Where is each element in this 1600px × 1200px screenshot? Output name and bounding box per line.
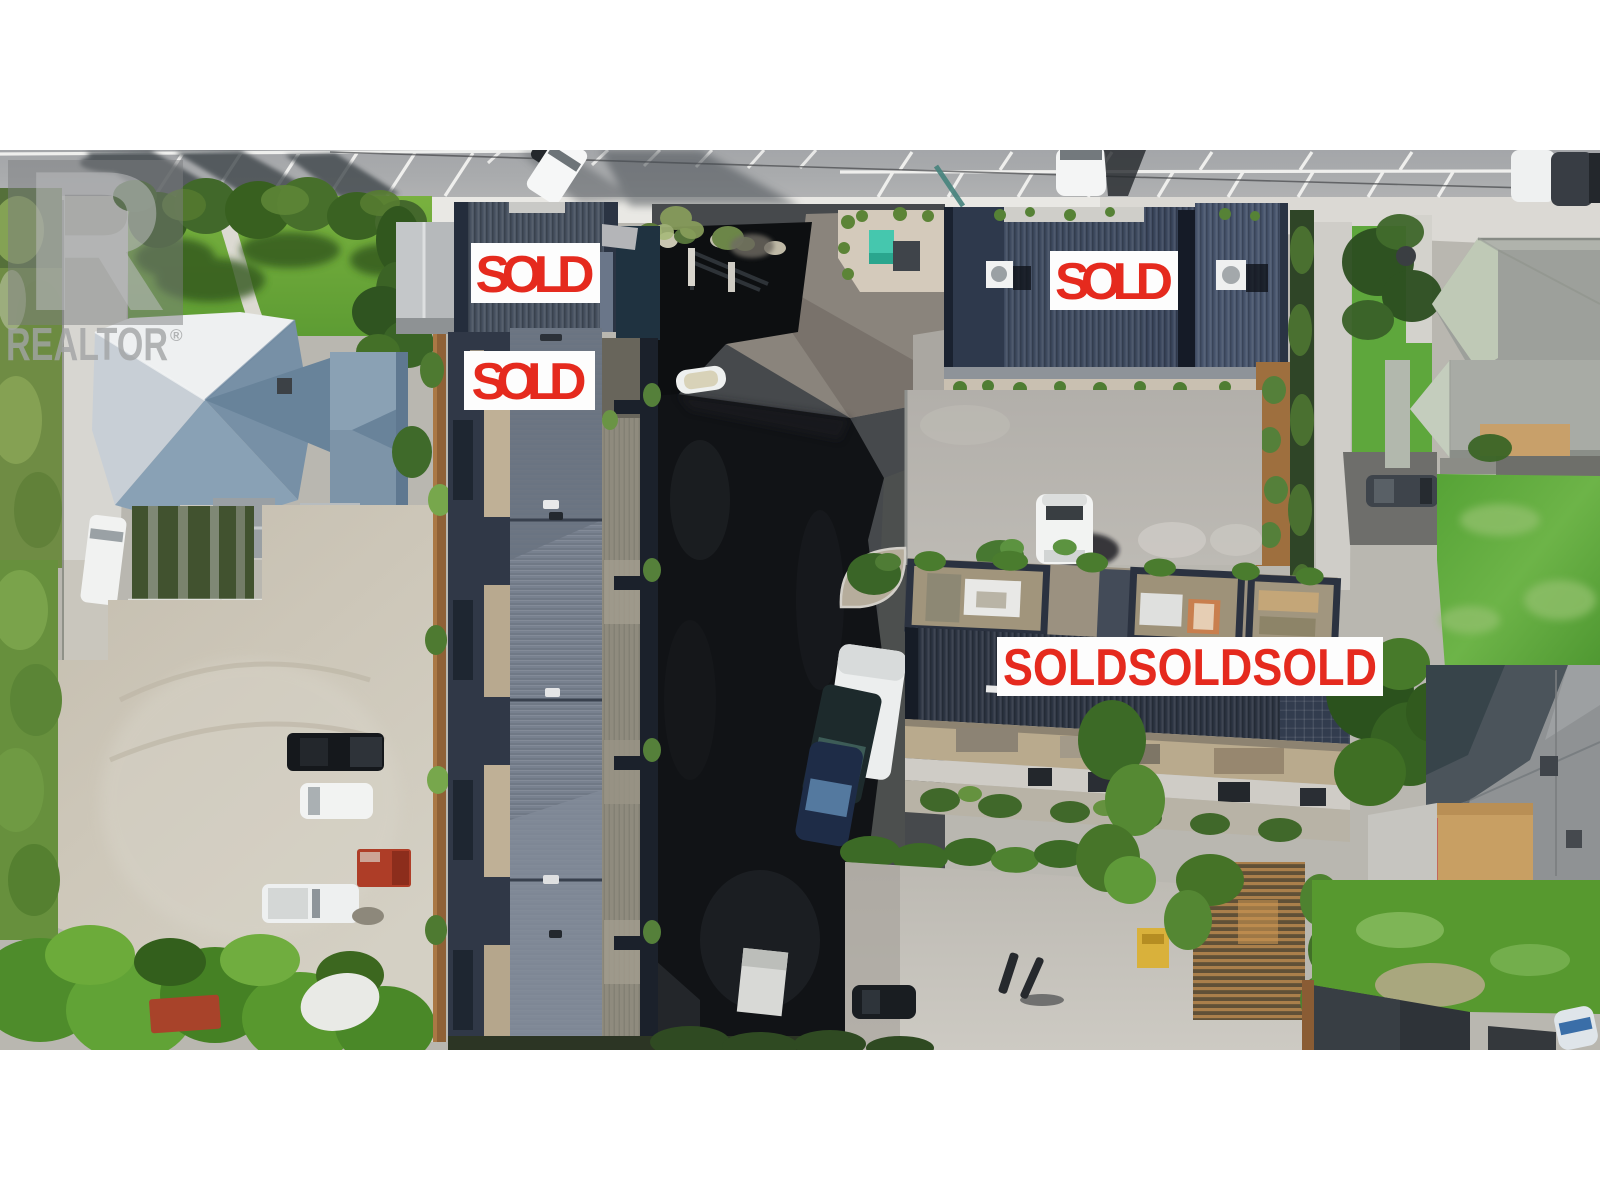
svg-text:SOLD: SOLD (476, 246, 595, 304)
svg-text:SOLDSOLDSOLD: SOLDSOLDSOLD (1003, 639, 1377, 697)
svg-text:REALTOR: REALTOR (6, 318, 168, 370)
svg-text:®: ® (170, 326, 183, 345)
svg-text:SOLD: SOLD (472, 353, 587, 411)
svg-text:SOLD: SOLD (1055, 253, 1173, 311)
